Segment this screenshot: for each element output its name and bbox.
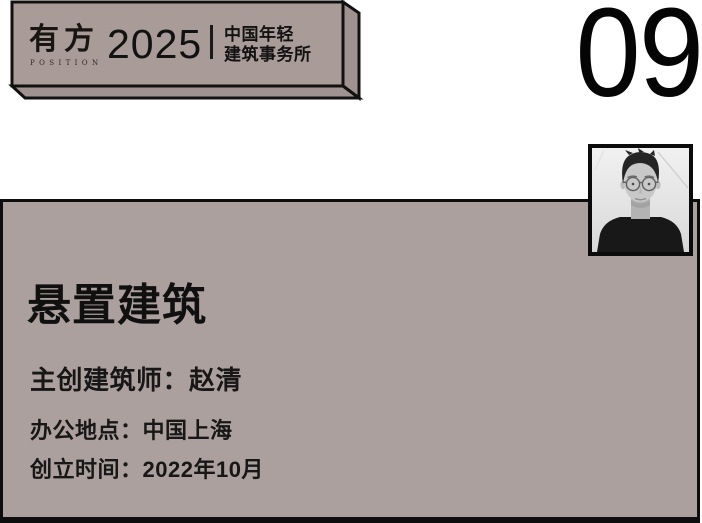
slide-canvas: 有方 POSITION 2025 中国年轻 建筑事务所 09 悬置建筑 主创建筑… (0, 0, 702, 523)
banner-tagline: 中国年轻 建筑事务所 (224, 25, 312, 65)
youfang-logo-latin: POSITION (30, 60, 103, 67)
founded-field: 创立时间：2022年10月 (30, 457, 264, 482)
studio-name: 悬置建筑 (27, 282, 207, 330)
location-field: 办公地点：中国上海 (30, 418, 233, 443)
portrait-illustration (592, 148, 689, 252)
banner-year: 2025 (107, 24, 202, 65)
banner-divider-line (210, 25, 213, 59)
architect-label: 主创建筑师： (30, 365, 189, 395)
banner-content: 有方 POSITION 2025 中国年轻 建筑事务所 (0, 0, 372, 106)
location-value: 中国上海 (143, 418, 233, 443)
portrait-shirt (597, 217, 684, 252)
founded-label: 创立时间： (30, 457, 143, 482)
architect-portrait-photo (588, 144, 693, 256)
tagline-line1: 中国年轻 (224, 25, 312, 45)
page-number: 09 (575, 0, 702, 116)
youfang-logo-cjk: 有方 (29, 25, 99, 55)
architect-value: 赵清 (189, 365, 242, 395)
location-label: 办公地点： (30, 418, 143, 443)
founded-value: 2022年10月 (143, 457, 264, 482)
tagline-line2: 建筑事务所 (224, 45, 312, 65)
architect-field: 主创建筑师：赵清 (30, 366, 242, 396)
brand-banner: 有方 POSITION 2025 中国年轻 建筑事务所 (0, 0, 372, 106)
